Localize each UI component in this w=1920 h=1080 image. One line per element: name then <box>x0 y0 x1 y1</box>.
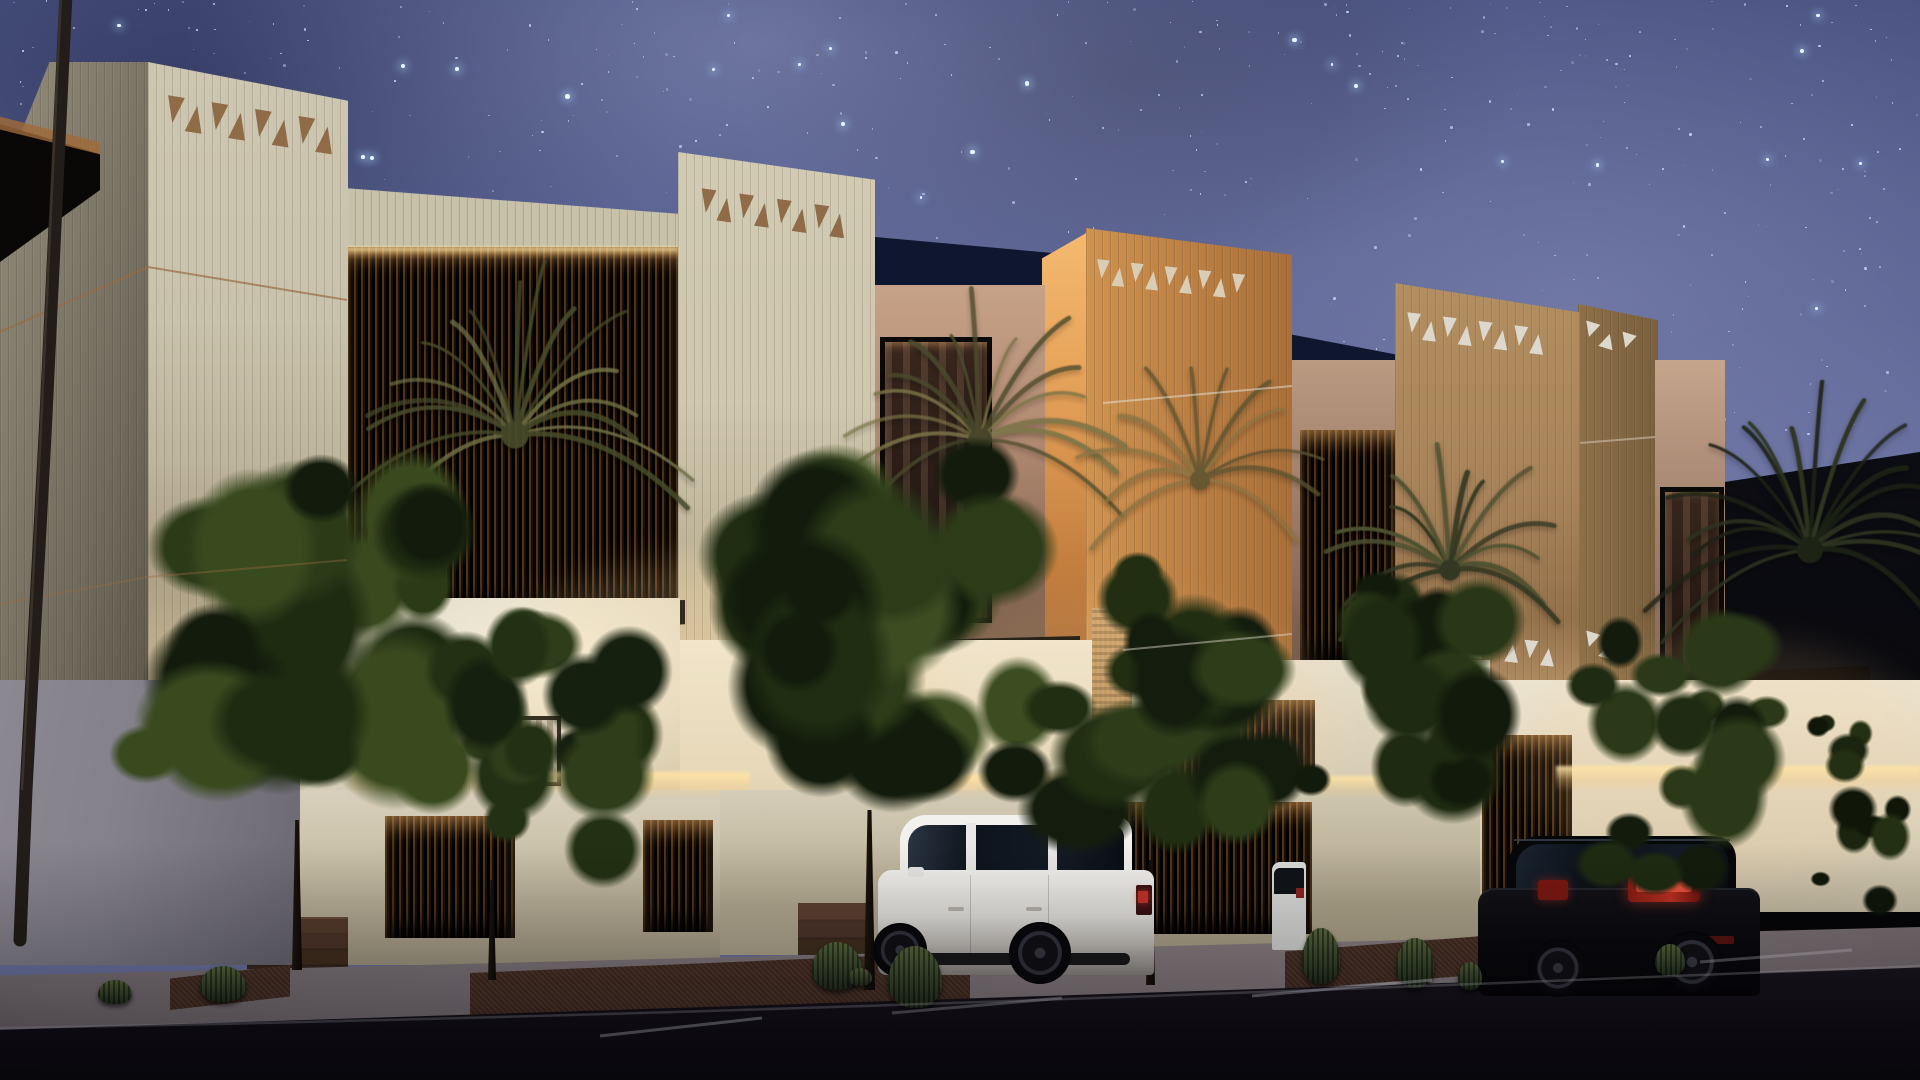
barrel-cactus-2 <box>98 980 132 1004</box>
street-tree-6 <box>1545 585 1815 925</box>
white-suv-taillight-core <box>1138 891 1148 903</box>
white-suv-handle-1 <box>948 907 964 911</box>
white-suv-door-seam-1 <box>970 875 971 955</box>
white-suv-rear-wheel <box>1009 922 1071 984</box>
black-suv-front-wheel <box>1529 939 1587 997</box>
street-tree-2 <box>400 585 700 915</box>
white-suv-handle-2 <box>1026 907 1042 911</box>
white-suv-mirror <box>908 867 924 877</box>
barrel-cactus-8 <box>1458 962 1482 990</box>
barrel-cactus-5 <box>848 968 872 986</box>
street-tree-7 <box>1790 690 1920 980</box>
night-render-scene <box>0 0 1920 1080</box>
barrel-cactus-1 <box>200 966 246 1002</box>
barrel-cactus-9 <box>1655 944 1685 976</box>
street-tree-4 <box>990 545 1330 885</box>
street-tree-5 <box>1280 560 1550 910</box>
